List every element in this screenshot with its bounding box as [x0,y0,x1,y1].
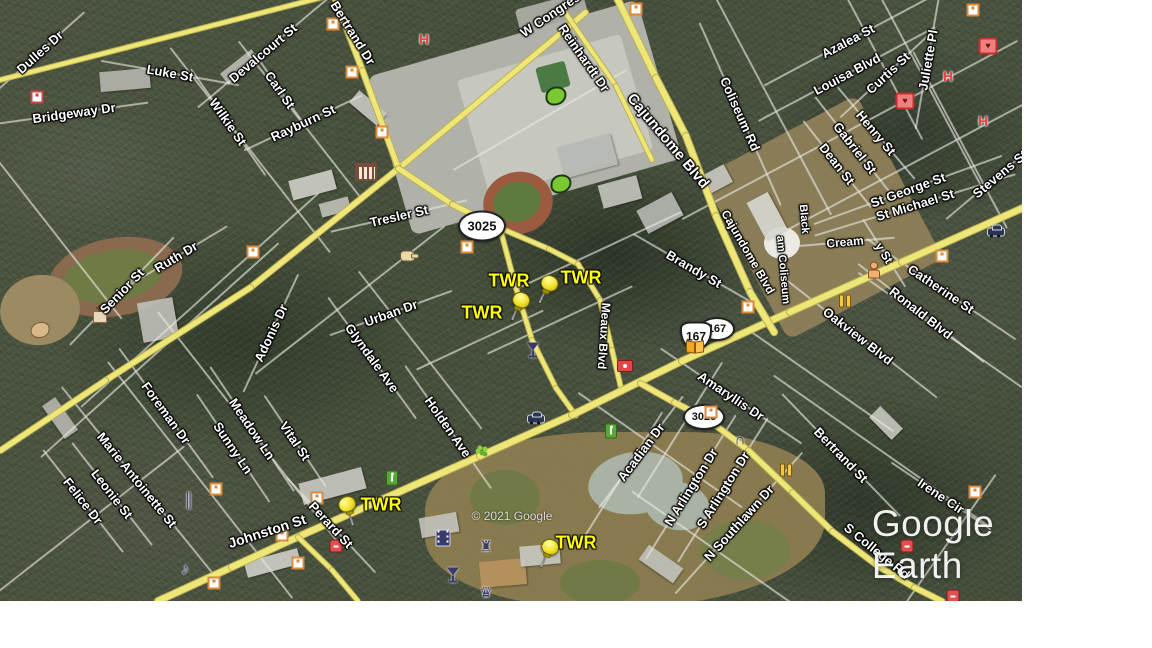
minor-road [255,225,446,375]
street-label: Adonis Dr [251,302,291,365]
open-book-icon[interactable] [686,341,704,353]
route-shield-3025: 3025 [458,211,506,242]
ped-green-icon[interactable] [386,471,398,486]
red-poi-icon[interactable] [947,590,960,602]
street-label: Oakview Blvd [820,304,896,368]
street-label: Glyndale Ave [342,321,402,396]
square-orange-icon[interactable] [210,483,223,496]
hospital-h-icon[interactable]: H [943,69,953,83]
building-roof [869,406,903,440]
street-label: Rayburn St [268,102,337,145]
masks-icon[interactable]: ♛ [480,585,493,599]
first-aid-icon[interactable]: ♥ [896,93,915,110]
camera-red-icon[interactable] [617,360,633,372]
square-orange-icon[interactable] [969,486,982,499]
ped-green-icon[interactable] [605,424,617,439]
flower-green-icon[interactable] [478,446,483,451]
square-orange-icon[interactable] [376,126,389,139]
street-label: Urban Dr [362,296,419,329]
square-orange-icon[interactable] [630,3,643,16]
twr-placemark-label[interactable]: TWR [361,495,402,516]
castle-icon[interactable]: ♜ [480,539,493,553]
street-label: Johnston St [226,511,308,551]
twr-placemark-label[interactable]: TWR [462,303,503,324]
square-orange-icon[interactable] [208,577,221,590]
major-road-johnston-branch [328,566,362,601]
street-label: Holden Ave [422,394,475,460]
martini-icon[interactable] [527,343,539,358]
hospital-h-icon[interactable]: H [978,114,988,128]
google-earth-watermark: Google Earth [872,503,994,587]
restaurant-icon[interactable] [780,464,792,477]
first-aid-icon[interactable]: ♥ [979,38,998,55]
street-label: Coliseum Rd [717,75,763,154]
copyright-label: © 2021 Google [472,509,553,523]
street-label: Carl St [262,69,298,112]
blob-green-icon[interactable] [551,175,572,194]
square-orange-icon[interactable] [292,557,305,570]
car-icon[interactable] [987,228,1005,237]
twr-placemark-label[interactable]: TWR [561,268,602,289]
pin-head [336,494,358,515]
music-icon[interactable]: ♪ [181,562,189,578]
blob-green-icon[interactable] [546,87,567,106]
twr-placemark-label[interactable]: TWR [489,271,530,292]
street-label: Brandy St [664,247,725,291]
film-icon[interactable] [436,530,451,547]
arch-icon[interactable]: ∩ [735,433,746,448]
satellite-map[interactable]: 30253025167167HHH♥♥♪║♜♛∩Dulles DrLuke St… [0,0,1022,601]
square-orange-icon[interactable] [742,301,755,314]
street-label: Wilkie St [206,96,249,149]
martini-icon[interactable] [447,568,459,583]
street-label: Vital St [277,419,314,464]
square-red-icon[interactable] [31,91,44,104]
building-roof [99,68,151,92]
museum-icon[interactable] [355,163,377,181]
car-icon[interactable] [527,415,545,424]
hospital-h-icon[interactable]: H [419,32,429,46]
person-icon[interactable] [868,262,880,279]
google-earth-viewport: 30253025167167HHH♥♥♪║♜♛∩Dulles DrLuke St… [0,0,1152,648]
street-label: Bridgeway Dr [31,100,116,127]
blob-tan-icon[interactable] [31,322,50,338]
square-orange-icon[interactable] [247,246,260,259]
restaurant-icon[interactable] [839,295,851,308]
street-label: Black [797,204,812,234]
square-orange-icon[interactable] [461,241,474,254]
square-orange-icon[interactable] [936,250,949,263]
pointing-hand-icon[interactable] [400,251,416,262]
double-bar-icon[interactable]: ║ [184,493,194,507]
square-orange-icon[interactable] [346,66,359,79]
street-label: Luke St [146,62,195,85]
square-orange-icon[interactable] [967,4,980,17]
terrain-patch [560,560,640,601]
twr-placemark-label[interactable]: TWR [556,533,597,554]
major-road-johnston-st [153,562,238,601]
square-orange-icon[interactable] [705,406,718,419]
